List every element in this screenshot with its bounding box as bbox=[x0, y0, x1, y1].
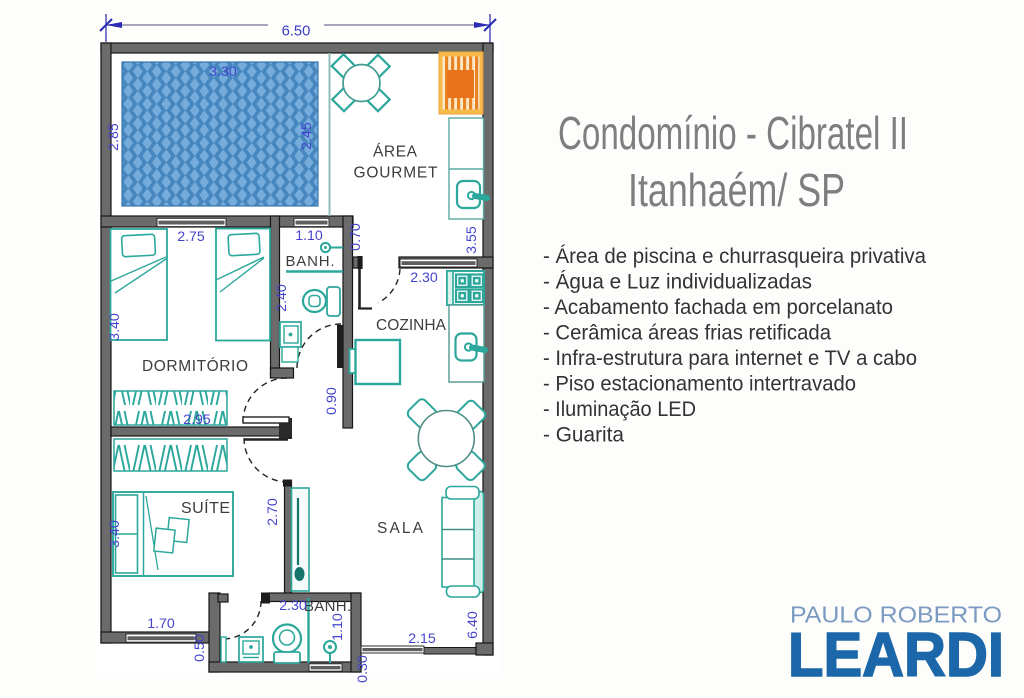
svg-text:3.40: 3.40 bbox=[107, 520, 123, 548]
svg-text:2.95: 2.95 bbox=[183, 412, 211, 428]
svg-text:- Cerâmica áreas frias retific: - Cerâmica áreas frias retificada bbox=[543, 322, 831, 345]
svg-text:2.45: 2.45 bbox=[299, 122, 315, 150]
svg-text:6.40: 6.40 bbox=[465, 611, 481, 639]
svg-text:BANH.: BANH. bbox=[304, 598, 351, 615]
svg-text:Condomínio - Cibratel II: Condomínio - Cibratel II bbox=[558, 107, 908, 159]
svg-text:0.50: 0.50 bbox=[192, 634, 208, 662]
svg-text:0.30: 0.30 bbox=[355, 655, 371, 683]
svg-text:2.85: 2.85 bbox=[106, 123, 122, 151]
svg-text:0.90: 0.90 bbox=[324, 387, 340, 415]
svg-text:3.30: 3.30 bbox=[209, 64, 237, 80]
svg-text:- Guarita: - Guarita bbox=[543, 424, 624, 447]
svg-text:1.10: 1.10 bbox=[295, 228, 323, 244]
svg-text:ÁREA: ÁREA bbox=[373, 144, 418, 161]
svg-text:2.70: 2.70 bbox=[265, 498, 281, 526]
svg-text:GOURMET: GOURMET bbox=[354, 165, 439, 182]
svg-text:Itanhaém/ SP: Itanhaém/ SP bbox=[628, 164, 845, 216]
svg-text:SUÍTE: SUÍTE bbox=[181, 498, 230, 517]
svg-text:6.50: 6.50 bbox=[282, 23, 311, 39]
svg-text:- Iluminação LED: - Iluminação LED bbox=[543, 398, 696, 421]
svg-text:3.40: 3.40 bbox=[107, 313, 123, 341]
svg-text:- Infra-estrutura para interne: - Infra-estrutura para internet e TV a c… bbox=[543, 347, 917, 370]
svg-text:BANH.: BANH. bbox=[286, 253, 335, 270]
svg-text:- Área de piscina e churrasque: - Área de piscina e churrasqueira privat… bbox=[543, 245, 926, 268]
svg-text:0.70: 0.70 bbox=[348, 223, 364, 251]
svg-text:LEARDI: LEARDI bbox=[788, 621, 1004, 690]
svg-text:1.10: 1.10 bbox=[330, 613, 346, 641]
svg-text:- Piso estacionamento intertra: - Piso estacionamento intertravado bbox=[543, 373, 856, 396]
svg-text:2.75: 2.75 bbox=[177, 229, 205, 245]
svg-text:2.40: 2.40 bbox=[274, 284, 290, 312]
svg-text:3.55: 3.55 bbox=[464, 226, 480, 254]
svg-text:2.30: 2.30 bbox=[410, 270, 438, 286]
svg-text:COZINHA: COZINHA bbox=[376, 317, 447, 334]
svg-text:DORMITÓRIO: DORMITÓRIO bbox=[142, 358, 248, 375]
svg-text:- Acabamento fachada em porcel: - Acabamento fachada em porcelanato bbox=[543, 296, 893, 319]
svg-text:2.30: 2.30 bbox=[279, 598, 307, 614]
svg-text:2.15: 2.15 bbox=[408, 631, 436, 647]
svg-text:- Água e Luz individualizadas: - Água e Luz individualizadas bbox=[543, 271, 812, 294]
svg-text:1.70: 1.70 bbox=[147, 616, 175, 632]
